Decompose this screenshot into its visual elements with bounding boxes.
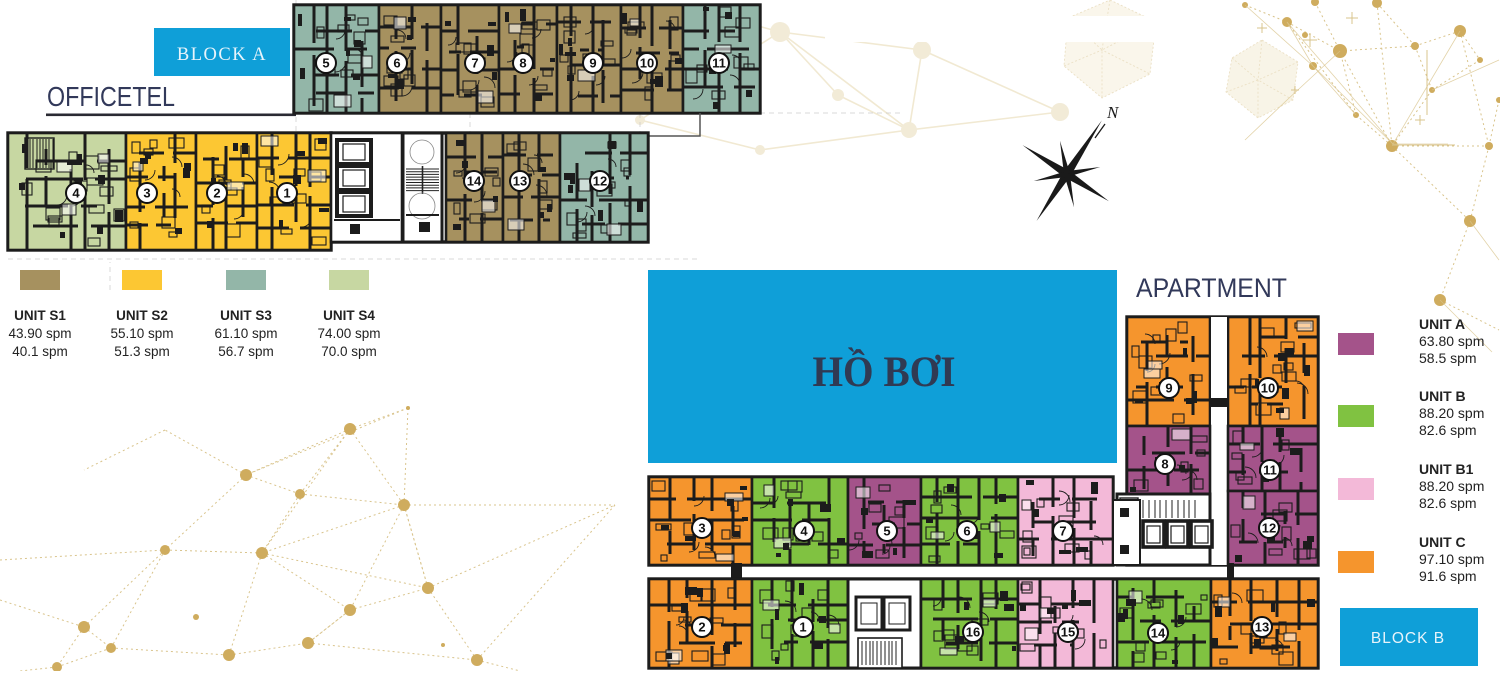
svg-text:40.1 spm: 40.1 spm [12, 344, 68, 359]
svg-text:14: 14 [467, 174, 482, 189]
svg-text:APARTMENT: APARTMENT [1136, 273, 1287, 303]
svg-text:12: 12 [593, 174, 607, 189]
svg-text:16: 16 [966, 625, 980, 640]
svg-text:55.10 spm: 55.10 spm [110, 326, 173, 341]
svg-text:14: 14 [1151, 626, 1166, 641]
svg-text:15: 15 [1061, 625, 1075, 640]
svg-text:UNIT B1: UNIT B1 [1419, 461, 1474, 477]
svg-text:8: 8 [1161, 457, 1168, 472]
svg-text:9: 9 [1165, 381, 1172, 396]
svg-text:7: 7 [471, 56, 478, 71]
svg-text:5: 5 [322, 56, 329, 71]
svg-text:91.6 spm: 91.6 spm [1419, 568, 1477, 584]
svg-text:1: 1 [799, 620, 806, 635]
svg-text:N: N [1106, 103, 1120, 122]
svg-text:88.20 spm: 88.20 spm [1419, 478, 1484, 494]
svg-text:4: 4 [72, 186, 80, 201]
svg-text:UNIT C: UNIT C [1419, 534, 1466, 550]
svg-text:4: 4 [800, 524, 808, 539]
svg-text:11: 11 [1263, 463, 1277, 478]
svg-text:BLOCK B: BLOCK B [1371, 630, 1445, 647]
svg-text:70.0 spm: 70.0 spm [321, 344, 377, 359]
svg-text:UNIT S2: UNIT S2 [116, 308, 168, 323]
svg-text:58.5 spm: 58.5 spm [1419, 350, 1477, 366]
svg-text:61.10 spm: 61.10 spm [214, 326, 277, 341]
svg-text:74.00 spm: 74.00 spm [317, 326, 380, 341]
svg-text:HỒ BƠI: HỒ BƠI [813, 348, 956, 396]
svg-text:9: 9 [589, 56, 596, 71]
svg-text:7: 7 [1059, 524, 1066, 539]
svg-text:11: 11 [712, 56, 726, 71]
svg-text:10: 10 [640, 56, 654, 71]
svg-text:63.80 spm: 63.80 spm [1419, 333, 1484, 349]
svg-text:1: 1 [283, 186, 290, 201]
svg-text:43.90 spm: 43.90 spm [8, 326, 71, 341]
svg-text:97.10 spm: 97.10 spm [1419, 551, 1484, 567]
svg-text:88.20 spm: 88.20 spm [1419, 405, 1484, 421]
svg-text:UNIT S3: UNIT S3 [220, 308, 272, 323]
svg-text:82.6 spm: 82.6 spm [1419, 495, 1477, 511]
svg-text:5: 5 [883, 524, 890, 539]
svg-text:10: 10 [1261, 381, 1275, 396]
svg-text:UNIT S1: UNIT S1 [14, 308, 66, 323]
svg-text:3: 3 [698, 521, 705, 536]
svg-text:6: 6 [963, 524, 970, 539]
svg-text:56.7 spm: 56.7 spm [218, 344, 274, 359]
svg-text:UNIT A: UNIT A [1419, 316, 1465, 332]
svg-text:51.3 spm: 51.3 spm [114, 344, 170, 359]
svg-text:13: 13 [1255, 620, 1269, 635]
svg-text:6: 6 [393, 56, 400, 71]
svg-text:12: 12 [1262, 521, 1276, 536]
svg-text:3: 3 [143, 186, 150, 201]
svg-text:UNIT S4: UNIT S4 [323, 308, 375, 323]
svg-text:8: 8 [519, 56, 526, 71]
svg-text:UNIT B: UNIT B [1419, 388, 1466, 404]
svg-text:OFFICETEL: OFFICETEL [47, 81, 175, 112]
svg-text:2: 2 [698, 620, 705, 635]
svg-text:2: 2 [213, 186, 220, 201]
svg-text:13: 13 [513, 174, 527, 189]
svg-text:BLOCK A: BLOCK A [177, 45, 267, 65]
svg-text:82.6 spm: 82.6 spm [1419, 422, 1477, 438]
